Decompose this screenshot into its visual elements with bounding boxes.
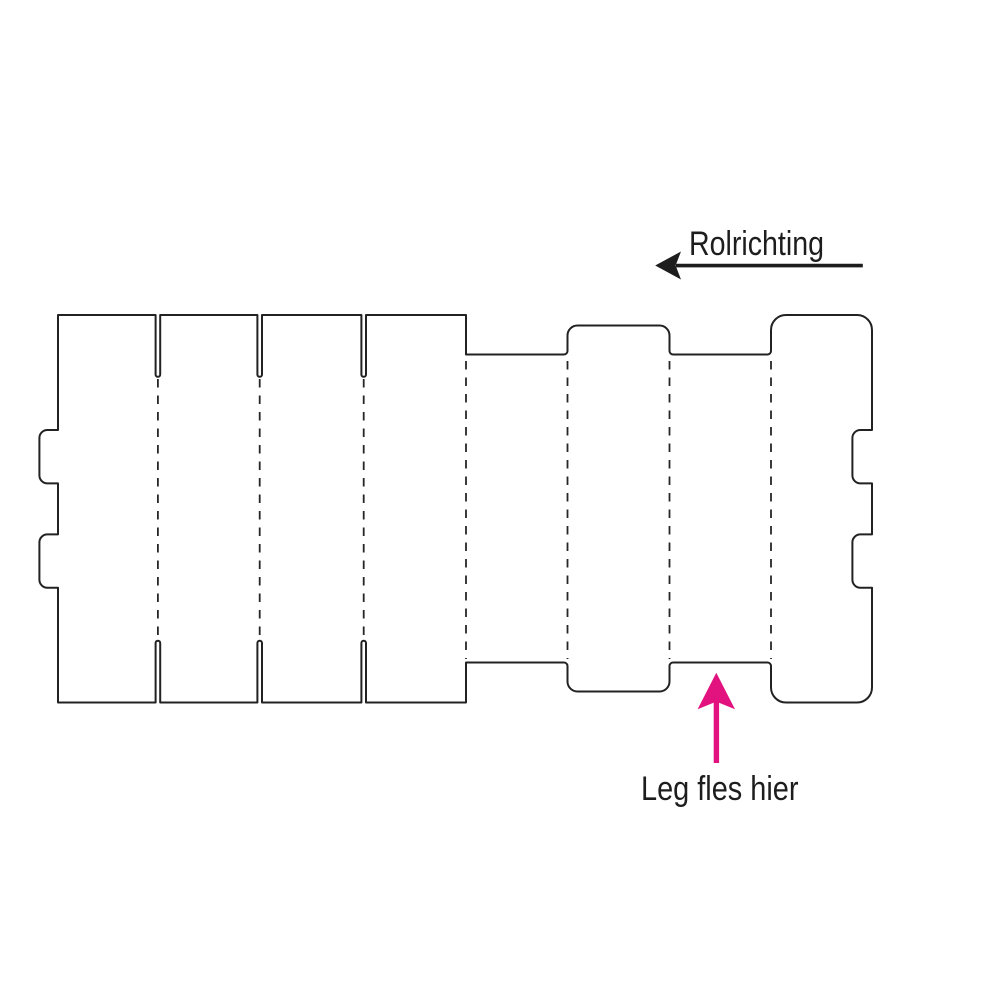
svg-text:Leg fles hier: Leg fles hier [641, 770, 799, 808]
svg-text:Rolrichting: Rolrichting [689, 225, 824, 263]
